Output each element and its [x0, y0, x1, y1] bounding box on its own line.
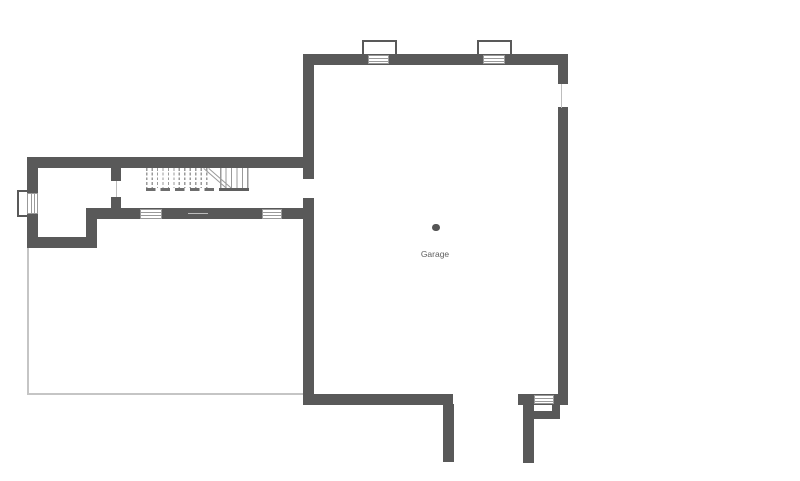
hall-top-wall	[27, 157, 314, 168]
column-marker-dot	[432, 224, 440, 232]
window-south-wall-2	[262, 209, 282, 219]
garage-top-wall	[303, 54, 568, 65]
garage-left-wall-lower	[303, 198, 314, 404]
driveway-right-wall	[523, 404, 534, 463]
window-line-right-wall	[561, 84, 563, 108]
room-label-garage: Garage	[405, 249, 465, 259]
garage-right-wall-lower	[558, 107, 569, 405]
window-south-wall-1	[140, 209, 162, 219]
window-left-wall	[27, 193, 38, 214]
garage-bottom-wall	[303, 394, 453, 405]
door-opening-line-hall	[116, 181, 118, 197]
garage-right-wall-upper	[558, 54, 569, 84]
stair-edge-bar	[219, 188, 249, 191]
garage-left-wall-upper	[303, 54, 314, 179]
driveway-left-wall	[443, 404, 454, 462]
window-garage-top-1	[368, 55, 389, 65]
window-bottom-right	[534, 395, 554, 405]
wall-opening-line-south	[188, 213, 208, 215]
door-stub-wall-upper	[111, 157, 121, 181]
unfinished-area-bottom-line	[27, 393, 304, 395]
unfinished-area-left-line	[27, 248, 29, 394]
stair-treads-hidden	[146, 168, 211, 188]
door-stub-wall-lower	[111, 197, 121, 219]
floor-plan: Garage	[0, 0, 800, 481]
window-garage-top-2	[483, 55, 505, 65]
step-bar-wall	[533, 411, 560, 419]
stair-hidden-edge-dashes	[146, 188, 214, 191]
